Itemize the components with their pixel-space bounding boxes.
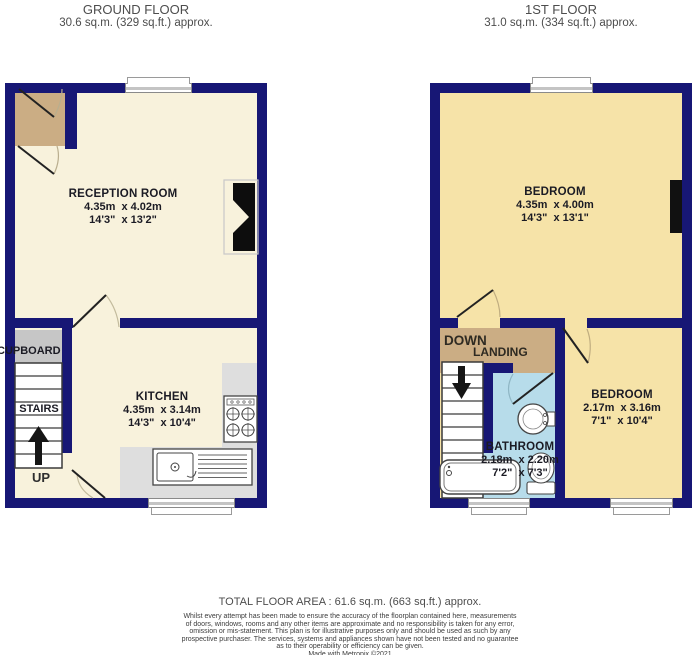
bathroom-label: BATHROOM 2.18m x 2.20m 7'2" x 7'3" — [470, 441, 570, 480]
kitchen-counter-bottom — [120, 447, 257, 498]
wall — [430, 318, 458, 328]
ground-floor-header: GROUND FLOOR 30.6 sq.m. (329 sq.ft.) app… — [5, 3, 267, 30]
room-dim-metric: 4.35m x 3.14m — [82, 404, 242, 417]
wall — [62, 323, 72, 453]
room-name: BEDROOM — [475, 186, 635, 199]
window — [125, 83, 192, 93]
disclaimer-line: of doors, windows, rooms and any other i… — [0, 621, 700, 629]
wall — [430, 83, 440, 508]
stairs-label: STAIRS — [8, 403, 70, 415]
room-dim-metric: 4.35m x 4.02m — [28, 201, 218, 214]
total-floor-area: TOTAL FLOOR AREA : 61.6 sq.m. (663 sq.ft… — [0, 595, 700, 609]
ground-floor-plan: RECEPTION ROOM 4.35m x 4.02m 14'3" x 13'… — [5, 83, 267, 508]
first-floor-title: 1ST FLOOR — [430, 3, 692, 17]
disclaimer-line: prospective purchaser. The services, sys… — [0, 636, 700, 644]
chimney-breast — [670, 180, 682, 233]
room-name: BEDROOM — [562, 389, 682, 402]
wall — [120, 318, 267, 328]
disclaimer-line: as to their operability or efficiency ca… — [0, 643, 700, 651]
room-dim-metric: 4.35m x 4.00m — [475, 199, 635, 212]
room-name: RECEPTION ROOM — [28, 188, 218, 201]
room-dim-imperial: 14'3" x 13'2" — [28, 214, 218, 227]
first-floor-header: 1ST FLOOR 31.0 sq.m. (334 sq.ft.) approx… — [430, 3, 692, 30]
disclaimer-line: omission or mis-statement. This plan is … — [0, 628, 700, 636]
wall — [257, 83, 267, 508]
wall — [483, 363, 493, 453]
room-dim-imperial: 7'1" x 10'4" — [562, 415, 682, 428]
kitchen-label: KITCHEN 4.35m x 3.14m 14'3" x 10'4" — [82, 391, 242, 430]
room-dim-imperial: 14'3" x 13'1" — [475, 212, 635, 225]
wall — [587, 318, 682, 328]
window-sill — [532, 77, 591, 84]
bedroom1-label: BEDROOM 4.35m x 4.00m 14'3" x 13'1" — [475, 186, 635, 225]
window-sill — [471, 508, 527, 515]
window — [468, 498, 530, 508]
cupboard-label: CUPBOARD — [0, 345, 61, 357]
metropix-credit: Made with Metropix ©2021 — [0, 651, 700, 655]
room-dim-metric: 2.18m x 2.20m — [470, 454, 570, 467]
window — [610, 498, 673, 508]
room-dim-imperial: 7'2" x 7'3" — [470, 467, 570, 480]
first-floor-plan: BEDROOM 4.35m x 4.00m 14'3" x 13'1" BEDR… — [430, 83, 692, 508]
floorplan-image: GROUND FLOOR 30.6 sq.m. (329 sq.ft.) app… — [0, 0, 700, 655]
room-dim-imperial: 14'3" x 10'4" — [82, 417, 242, 430]
disclaimer: Whilst every attempt has been made to en… — [0, 613, 700, 655]
bedroom2-label: BEDROOM 2.17m x 3.16m 7'1" x 10'4" — [562, 389, 682, 428]
room-dim-metric: 2.17m x 3.16m — [562, 402, 682, 415]
window-sill — [613, 508, 670, 515]
ground-floor-interior — [15, 93, 257, 498]
room-name: KITCHEN — [82, 391, 242, 404]
ground-floor-area: 30.6 sq.m. (329 sq.ft.) approx. — [5, 17, 267, 30]
disclaimer-line: Whilst every attempt has been made to en… — [0, 613, 700, 621]
window-sill — [151, 508, 232, 515]
up-label: UP — [21, 470, 61, 485]
footer: TOTAL FLOOR AREA : 61.6 sq.m. (663 sq.ft… — [0, 595, 700, 655]
landing-label: LANDING — [473, 345, 528, 359]
wall — [5, 83, 15, 508]
reception-room-label: RECEPTION ROOM 4.35m x 4.02m 14'3" x 13'… — [28, 188, 218, 227]
wall — [65, 83, 77, 149]
room-name: BATHROOM — [470, 441, 570, 454]
first-floor-area: 31.0 sq.m. (334 sq.ft.) approx. — [430, 17, 692, 30]
ground-floor-title: GROUND FLOOR — [5, 3, 267, 17]
window — [530, 83, 593, 93]
wall — [682, 83, 692, 508]
entrance-hall — [15, 93, 65, 146]
window-sill — [127, 77, 190, 84]
window — [148, 498, 235, 508]
